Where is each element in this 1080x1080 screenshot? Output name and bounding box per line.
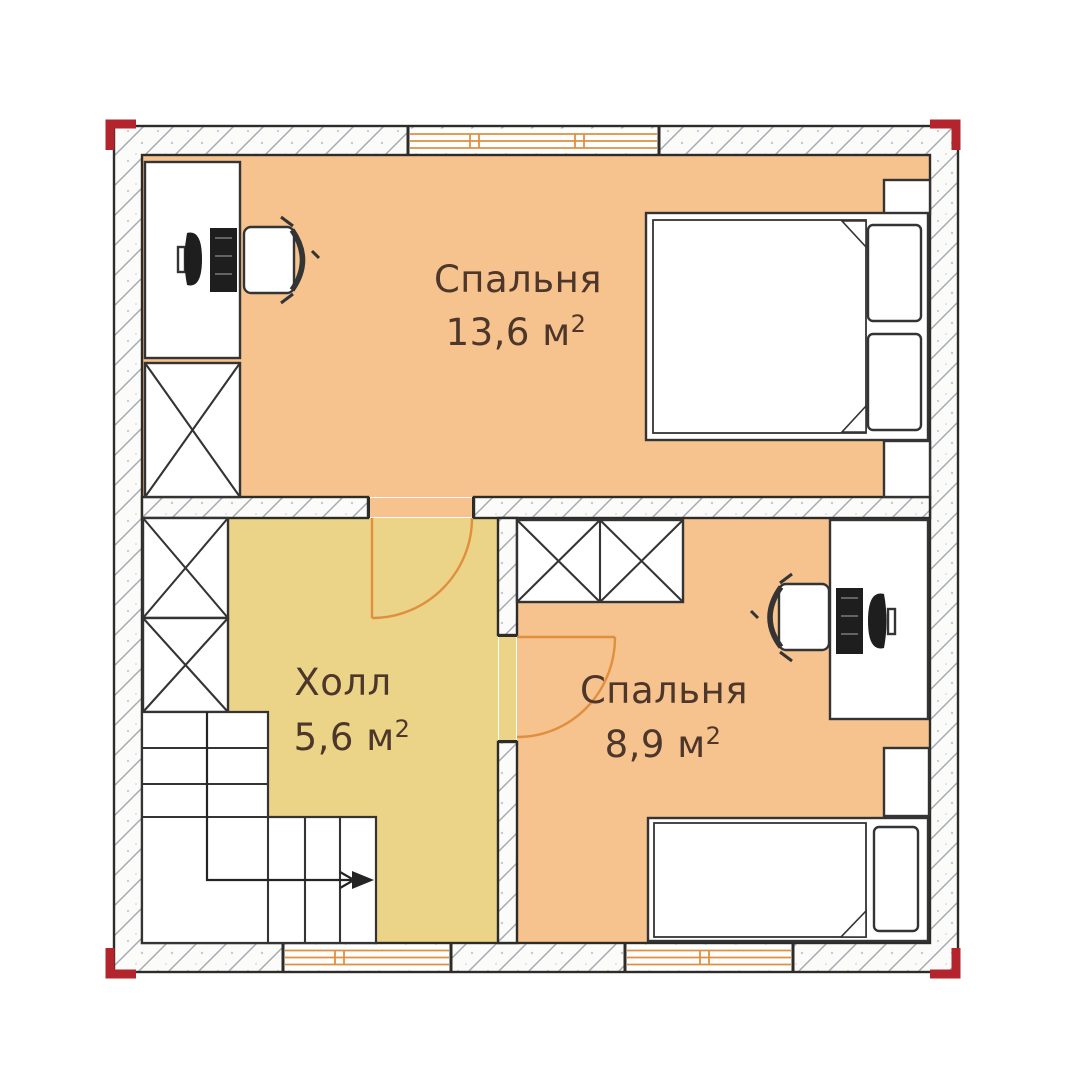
monitor-icon xyxy=(868,594,887,649)
hall-area: 5,6 м2 xyxy=(294,715,411,759)
middle-wall-right-segment xyxy=(474,497,930,518)
bedroom2-single-bed-symbol xyxy=(648,818,928,941)
bedroom1-label: Спальня xyxy=(434,258,602,301)
vertical-wall-upper-segment xyxy=(498,518,517,635)
hall-label: Холл xyxy=(294,661,391,704)
wall-pier xyxy=(884,180,930,214)
pillow xyxy=(868,334,921,430)
middle-wall-left-segment xyxy=(142,497,368,518)
pillow xyxy=(868,225,921,321)
chair-seat xyxy=(244,227,294,293)
bedroom2-desk-with-computer-symbol xyxy=(830,520,928,719)
bedroom1-double-bed-symbol xyxy=(646,213,928,440)
bedroom1-area: 13,6 м2 xyxy=(446,310,587,354)
monitor-icon xyxy=(185,233,203,286)
window-bottom-left xyxy=(283,944,451,971)
monitor-stand xyxy=(178,247,185,272)
monitor-stand xyxy=(888,609,895,634)
bedroom1-desk-with-computer-symbol xyxy=(145,162,240,358)
door-opening xyxy=(370,498,473,517)
floor-plan-canvas: Спальня 13,6 м2 Холл 5,6 м2 Спальня 8,9 … xyxy=(0,0,1080,1080)
vertical-wall-lower-segment xyxy=(498,742,517,943)
floor-plan-drawing: Спальня 13,6 м2 Холл 5,6 м2 Спальня 8,9 … xyxy=(0,0,1080,1080)
pillow xyxy=(874,827,918,931)
wall-pier xyxy=(884,748,929,816)
window-bottom-right xyxy=(625,944,793,971)
bedroom2-wardrobe-symbol xyxy=(517,520,683,602)
chair-seat xyxy=(779,584,829,650)
hall-wardrobe-symbol xyxy=(143,518,228,618)
bedroom2-area: 8,9 м2 xyxy=(605,722,722,766)
door-opening xyxy=(499,637,516,741)
wall-pier xyxy=(884,441,930,497)
window-top xyxy=(408,127,659,154)
bedroom2-label: Спальня xyxy=(580,669,748,712)
bedroom1-wardrobe-symbol xyxy=(145,363,240,497)
hall-wardrobe-symbol xyxy=(143,618,228,712)
